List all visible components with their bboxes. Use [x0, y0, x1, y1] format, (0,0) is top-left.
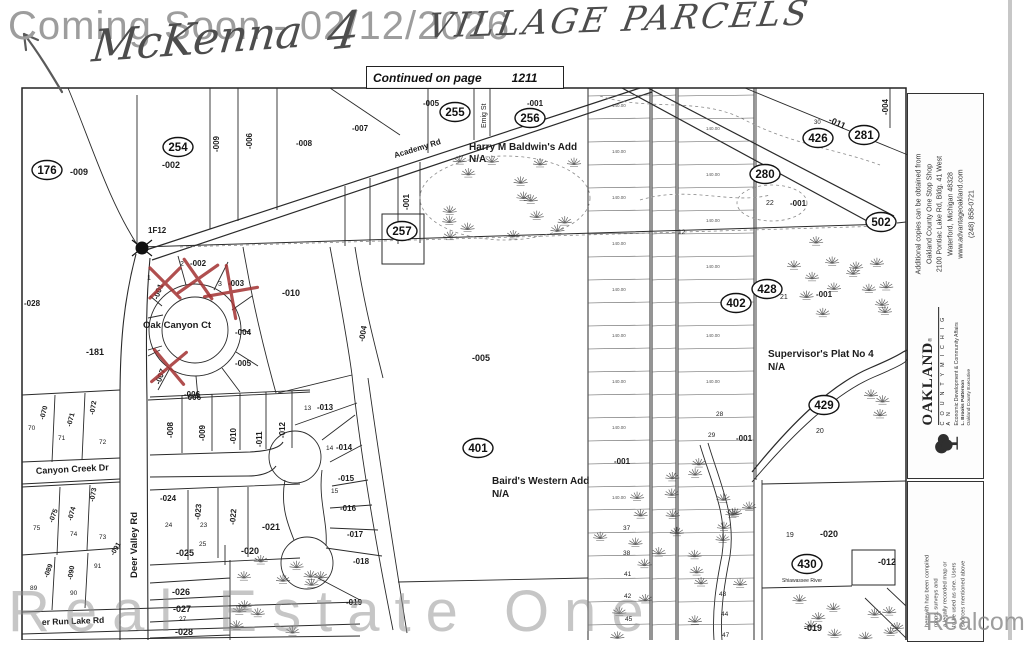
- map-label: 14: [326, 445, 334, 452]
- map-label: 30: [814, 120, 821, 126]
- map-label: -005: [423, 99, 440, 108]
- listing-photo-page: { "header": { "coming_soon": "Coming Soo…: [0, 0, 1024, 640]
- logo-name: OAKLAND: [920, 342, 936, 426]
- map-label: -009: [212, 135, 221, 152]
- parcel-id-label: 256: [520, 113, 539, 125]
- parcel-id-label: 280: [755, 169, 774, 181]
- map-label: -001: [736, 434, 753, 443]
- map-label: -018: [353, 557, 370, 566]
- map-label: 140.00: [706, 218, 720, 223]
- map-label: -005: [472, 353, 490, 363]
- parcel-id-label: 428: [757, 284, 777, 296]
- map-label: -001: [402, 193, 411, 210]
- registered-mark: ®: [928, 338, 934, 342]
- parcel-id-label: 402: [726, 298, 745, 310]
- map-label: -009: [70, 167, 88, 177]
- map-label: Harry M Baldwin's Add: [469, 142, 577, 153]
- map-label: 1: [147, 275, 151, 282]
- map-label: N/A: [469, 154, 486, 165]
- text-line: Additional copies can be obtained from: [914, 99, 925, 329]
- text-line: maps, surveys and: [932, 481, 941, 627]
- parcel-id-label: 281: [854, 130, 874, 142]
- map-label: 38: [623, 550, 631, 557]
- oak-tree-icon: [931, 429, 961, 457]
- map-label: -001: [816, 290, 833, 299]
- map-label: -008: [296, 139, 313, 148]
- map-label: -008: [166, 421, 175, 438]
- map-label: 140.00: [706, 333, 720, 338]
- parcel-id-label: 401: [468, 443, 488, 455]
- parcel-id-label: 176: [37, 165, 56, 177]
- map-label: 47: [722, 632, 730, 639]
- map-label: 140.00: [706, 379, 720, 384]
- map-label: 15: [331, 488, 339, 495]
- continued-on-page-box: Continued on page 1211: [366, 66, 564, 89]
- map-label: 25: [199, 541, 207, 548]
- map-label: -028: [24, 299, 41, 308]
- map-label: 29: [708, 432, 716, 439]
- map-label: 3: [218, 281, 222, 288]
- map-label: N/A: [492, 489, 509, 500]
- map-label: -017: [347, 530, 364, 539]
- map-label: -011: [255, 431, 264, 447]
- text-line: www.advantageoakland.com: [956, 99, 967, 329]
- map-label: -022: [228, 508, 238, 525]
- sidebar-county-info-panel: Additional copies can be obtained fromOa…: [907, 93, 984, 479]
- map-label: Deer Valley Rd: [129, 512, 140, 578]
- exec-title: Oakland County Executive: [966, 307, 972, 425]
- plat-map-canvas: -009-002-009-006-008-007-005Emig St-001A…: [0, 0, 1024, 640]
- map-label: 140.00: [612, 495, 626, 500]
- map-label: 140.00: [612, 333, 626, 338]
- map-label: 43: [719, 591, 727, 598]
- map-label: Supervisor's Plat No 4: [768, 349, 874, 360]
- exec-name: L. Brooks Patterson: [960, 307, 966, 425]
- text-line: to be used as one. Users: [950, 481, 959, 627]
- map-label: -005: [235, 359, 252, 368]
- map-label: 140.00: [612, 149, 626, 154]
- map-label: 140.00: [612, 425, 626, 430]
- map-label: 22: [766, 200, 774, 207]
- map-label: Oak Canyon Ct: [143, 320, 212, 331]
- map-label: -023: [193, 503, 203, 520]
- parcel-id-label: 426: [808, 133, 827, 145]
- map-label: 44: [721, 611, 729, 618]
- map-label: -012: [878, 557, 896, 567]
- map-label: -020: [241, 546, 259, 556]
- map-label: 140.00: [706, 172, 720, 177]
- map-label: 23: [200, 522, 208, 529]
- map-label: -021: [262, 522, 280, 532]
- map-label: Baird's Western Add: [492, 476, 589, 487]
- realcomp-watermark: Realcomp: [926, 608, 1024, 637]
- map-label: -001: [790, 199, 807, 208]
- parcel-id-label: 257: [392, 226, 411, 238]
- map-label: -016: [340, 504, 357, 513]
- map-label: -002: [190, 259, 207, 268]
- realestate-one-watermark: Real Estate One: [8, 578, 659, 645]
- map-label: 72: [99, 439, 107, 446]
- map-label: -010: [282, 288, 300, 298]
- map-label: -004: [881, 98, 890, 115]
- map-label: -002: [162, 160, 180, 170]
- map-label: -009: [198, 424, 207, 441]
- parcel-id-label: 254: [168, 142, 188, 154]
- map-label: 140.00: [706, 264, 720, 269]
- map-label: 140.00: [612, 103, 626, 108]
- map-label: -010: [229, 427, 238, 444]
- county-contact-info: Additional copies can be obtained fromOa…: [914, 99, 977, 329]
- map-label: 91: [94, 563, 102, 570]
- logo-dept: Economic Development & Community Affairs: [954, 307, 961, 425]
- map-label: -006: [245, 132, 254, 149]
- continued-page-number: 1211: [512, 71, 538, 85]
- map-label: 74: [70, 531, 78, 538]
- text-line: sources mentioned above: [959, 481, 968, 627]
- map-label: 75: [33, 525, 41, 532]
- text-line: herewith has been compiled: [923, 481, 932, 627]
- map-label: Emig St: [481, 103, 488, 128]
- text-line: Waterford, Michigan 48328: [946, 99, 957, 329]
- map-label: -024: [160, 494, 177, 503]
- map-label: 73: [99, 534, 107, 541]
- map-label: 71: [58, 435, 66, 442]
- map-label: 28: [716, 411, 724, 418]
- map-label: -004: [235, 328, 252, 337]
- map-label: -020: [820, 529, 838, 539]
- map-label: N/A: [768, 362, 785, 373]
- map-label: -012: [278, 421, 287, 438]
- map-label: -015: [338, 474, 355, 483]
- text-line: (248) 858-0721: [967, 99, 978, 329]
- map-label: -001: [614, 457, 631, 466]
- map-label: 19: [786, 532, 794, 539]
- map-label: 20: [816, 428, 824, 435]
- disclaimer-text: herewith has been compiledmaps, surveys …: [923, 481, 968, 627]
- map-label: -001: [527, 99, 544, 108]
- text-line: Oakland County One Stop Shop: [925, 99, 936, 329]
- parcel-id-label: 255: [445, 107, 465, 119]
- map-label: -025: [176, 548, 194, 558]
- map-label: -181: [86, 347, 104, 357]
- continued-label: Continued on page: [373, 71, 482, 85]
- map-label: 12: [678, 229, 686, 236]
- map-label: 41: [624, 571, 632, 578]
- text-line: 2100 Pontiac Lake Rd, Bldg. 41 West: [935, 99, 946, 329]
- map-label: 140.00: [612, 241, 626, 246]
- map-label: 140.00: [612, 195, 626, 200]
- map-label: 13: [304, 405, 312, 412]
- text-line: a legally recorded map or: [941, 481, 950, 627]
- map-label: 24: [165, 522, 173, 529]
- parcel-id-label: 429: [814, 400, 833, 412]
- oakland-county-logo: OAKLAND® C O U N T Y M I C H I G A N Eco…: [919, 307, 973, 457]
- map-label: -013: [317, 403, 334, 412]
- map-label: 140.00: [612, 379, 626, 384]
- map-label: -014: [336, 443, 353, 452]
- map-label: -006: [184, 390, 201, 399]
- map-label: -007: [352, 124, 369, 133]
- map-label: 37: [623, 525, 631, 532]
- logo-subtitle: C O U N T Y M I C H I G A N: [938, 307, 952, 425]
- parcel-id-label: 502: [871, 217, 890, 229]
- map-label: -019: [804, 623, 822, 633]
- parcel-id-label: 430: [797, 559, 816, 571]
- map-label: 70: [28, 425, 36, 432]
- map-label: 140.00: [612, 287, 626, 292]
- map-label: 140.00: [706, 126, 720, 131]
- map-label: Shiawassee River: [782, 578, 822, 584]
- map-label: 21: [780, 294, 788, 301]
- map-label: 1F12: [148, 226, 167, 235]
